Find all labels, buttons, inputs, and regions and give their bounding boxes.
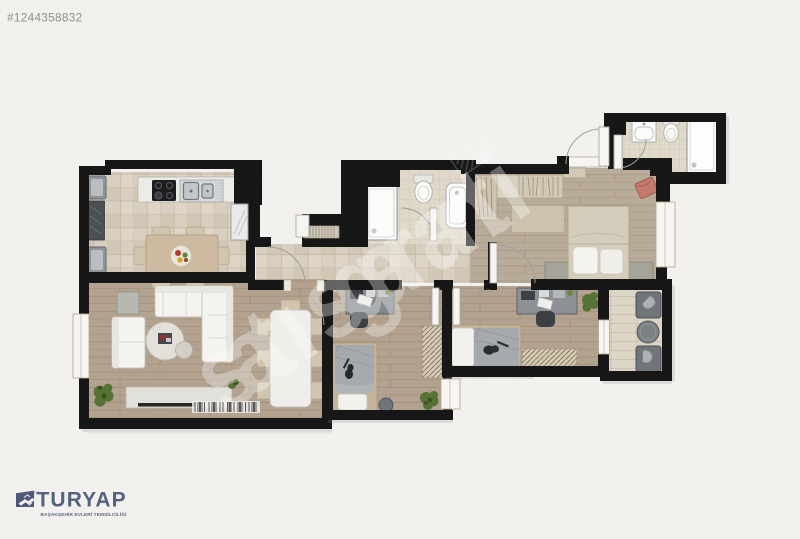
svg-text:BAŞAKŞEHİR EVLERİ TEMSİLCİLİĞİ: BAŞAKŞEHİR EVLERİ TEMSİLCİLİĞİ — [41, 510, 127, 517]
svg-text:#1244358832: #1244358832 — [7, 11, 82, 25]
svg-text:TURYAP: TURYAP — [37, 489, 127, 512]
